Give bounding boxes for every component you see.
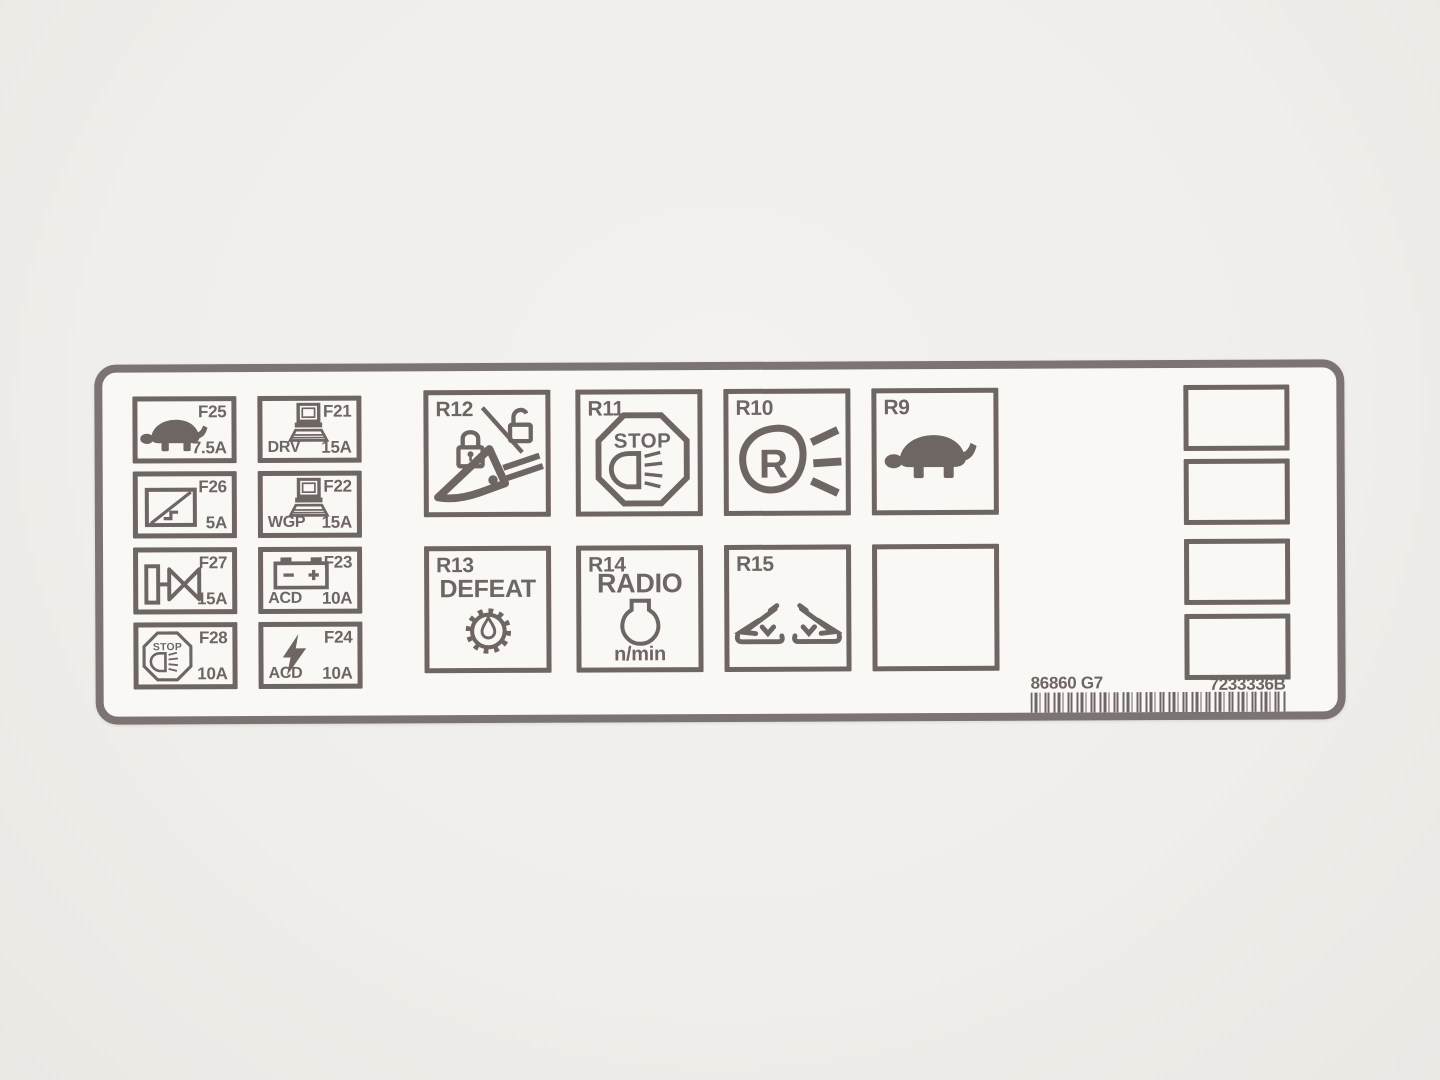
fuse-id: F28 (199, 629, 227, 646)
empty-slot-1 (1183, 385, 1289, 451)
empty-slot-4 (1184, 614, 1290, 680)
stop-text: STOP (614, 429, 672, 452)
door-locks-icon (432, 399, 544, 511)
battery-icon (273, 556, 329, 590)
fuse-id: F24 (324, 629, 352, 646)
empty-slot-3 (1184, 539, 1290, 605)
fuse-id: F23 (324, 554, 352, 571)
relay-label: RADIO (581, 570, 698, 598)
relay-box-r14: R14 RADIO n/min (576, 545, 704, 673)
fuse-relay-panel-label: F25 7.5A F26 5A F27 15A STOP F28 (94, 359, 1346, 724)
gear-droplet-icon (453, 599, 523, 663)
relay-id: R13 (436, 555, 474, 576)
seats-icon (734, 601, 842, 653)
relay-id: R15 (736, 554, 774, 575)
turtle-icon (883, 425, 987, 485)
fuse-box-f22: F22 WGP 15A (258, 471, 362, 538)
relay-box-empty (872, 544, 1000, 672)
fuse-amperage: 15A (197, 590, 227, 607)
fuse-amperage: 10A (322, 665, 352, 682)
empty-slot-2 (1184, 459, 1290, 525)
fuse-circuit: ACD (269, 666, 303, 682)
relay-box-r13: R13 DEFEAT (424, 546, 552, 674)
fuse-amperage: 15A (322, 514, 352, 531)
reverse-letter: R (759, 440, 789, 486)
relay-box-r11: R11 STOP (575, 389, 703, 517)
part-number-left: 86860 G7 (1031, 674, 1103, 691)
photo-background: { "colors":{"ink":"#6e6663","frame":"#7b… (0, 0, 1440, 1080)
fuse-circuit: ACD (268, 591, 302, 607)
fuse-amperage: 15A (321, 439, 351, 456)
barcode (1031, 692, 1287, 713)
fuse-box-f26: F26 5A (133, 471, 237, 538)
fuse-amperage: 5A (206, 514, 227, 531)
fuse-box-f23: F23 ACD 10A (258, 547, 362, 614)
relay-box-r12: R12 (423, 390, 551, 518)
relay-id: R9 (883, 397, 909, 418)
relay-box-r10: R10 R (723, 388, 851, 516)
fuse-id: F22 (323, 478, 351, 495)
fuse-box-f24: F24 ACD 10A (258, 622, 362, 689)
fuse-amperage: 7.5A (192, 439, 227, 456)
relay-box-r15: R15 (724, 544, 852, 672)
fuse-circuit: DRV (268, 440, 301, 456)
relay-id: R10 (735, 398, 773, 419)
fuse-box-f27: F27 15A (133, 547, 237, 614)
fuse-amperage: 10A (197, 665, 227, 682)
relay-sublabel: n/min (581, 644, 698, 665)
fuse-box-f21: F21 DRV 15A (257, 396, 361, 463)
window-dimmer-icon (144, 487, 198, 527)
stop-lamp-icon: STOP (593, 410, 691, 508)
reverse-lamp-icon: R (732, 417, 846, 505)
fuse-id: F25 (198, 403, 226, 420)
relay-box-r9: R9 (871, 388, 999, 516)
fuse-circuit: WGP (268, 515, 305, 531)
stop-text: STOP (153, 642, 182, 653)
stop-lamp-icon: STOP (141, 630, 193, 682)
fuse-box-f25: F25 7.5A (132, 396, 236, 463)
solenoid-valve-icon (143, 561, 203, 607)
fuse-id: F26 (198, 478, 226, 495)
fuse-id: F27 (199, 554, 227, 571)
fuse-amperage: 10A (322, 590, 352, 607)
fuse-box-f28: STOP F28 10A (133, 622, 237, 689)
fuse-id: F21 (323, 403, 351, 420)
part-number-right: 7233336B (1210, 676, 1286, 693)
